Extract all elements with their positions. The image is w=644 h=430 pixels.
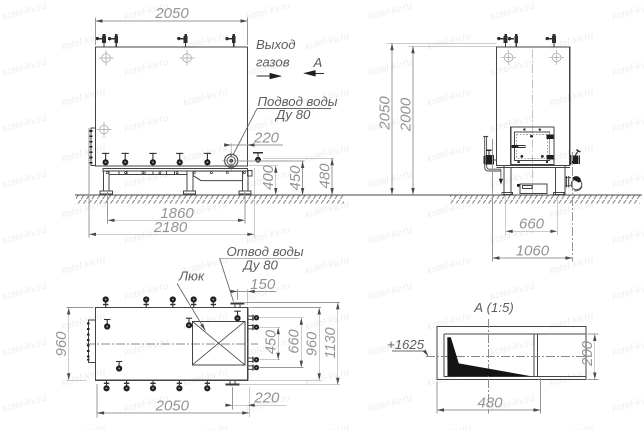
svg-text:Выход: Выход	[256, 37, 296, 52]
svg-text:660: 660	[519, 215, 545, 232]
svg-text:660: 660	[287, 329, 303, 353]
svg-text:200: 200	[579, 340, 596, 367]
svg-text:480: 480	[477, 394, 503, 411]
svg-text:2050: 2050	[154, 5, 189, 22]
svg-text:1130: 1130	[323, 327, 339, 358]
svg-text:480: 480	[317, 163, 334, 189]
svg-text:газов: газов	[256, 55, 290, 70]
svg-text:220: 220	[253, 130, 280, 147]
svg-text:Люк: Люк	[178, 269, 205, 284]
svg-text:450: 450	[264, 330, 280, 354]
svg-text:150: 150	[250, 276, 276, 293]
svg-text:А: А	[313, 55, 323, 70]
svg-text:400: 400	[260, 164, 277, 190]
svg-text:2050: 2050	[155, 397, 190, 414]
svg-text:1060: 1060	[516, 242, 550, 259]
svg-text:2180: 2180	[153, 219, 188, 236]
svg-text:+1625: +1625	[387, 337, 425, 352]
svg-text:960: 960	[305, 332, 321, 356]
svg-text:А (1:5): А (1:5)	[473, 300, 514, 315]
svg-text:960: 960	[53, 331, 70, 357]
svg-text:Ду 80: Ду 80	[242, 258, 279, 273]
svg-text:450: 450	[287, 165, 304, 191]
svg-text:Ду 80: Ду 80	[274, 107, 311, 122]
svg-text:2000: 2000	[397, 97, 414, 132]
svg-text:2050: 2050	[376, 96, 393, 131]
svg-text:220: 220	[253, 390, 280, 407]
